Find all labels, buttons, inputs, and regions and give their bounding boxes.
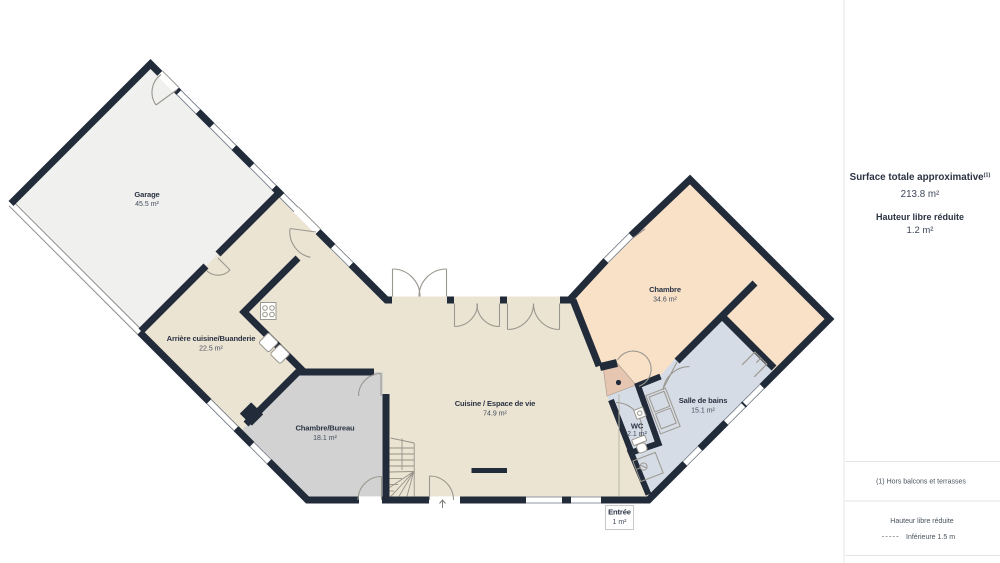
svg-text:22.5 m²: 22.5 m²	[199, 346, 223, 353]
svg-text:WC: WC	[631, 422, 644, 431]
svg-text:Garage: Garage	[134, 190, 159, 199]
svg-text:Arrière cuisine/Buanderie: Arrière cuisine/Buanderie	[167, 334, 256, 343]
svg-text:(1) Hors balcons et terrasses: (1) Hors balcons et terrasses	[876, 479, 966, 486]
svg-text:Entrée: Entrée	[608, 508, 631, 517]
svg-text:1 m²: 1 m²	[613, 519, 628, 526]
svg-text:Cuisine / Espace de vie: Cuisine / Espace de vie	[455, 399, 536, 408]
svg-text:34.6 m²: 34.6 m²	[653, 297, 677, 304]
svg-text:1.2 m²: 1.2 m²	[907, 225, 934, 236]
svg-text:213.8 m²: 213.8 m²	[901, 189, 940, 200]
svg-text:Hauteur libre réduite: Hauteur libre réduite	[890, 518, 954, 525]
svg-text:Chambre/Bureau: Chambre/Bureau	[295, 424, 355, 433]
svg-text:2.1 m²: 2.1 m²	[627, 431, 648, 438]
svg-text:45.5 m²: 45.5 m²	[135, 201, 159, 208]
svg-text:15.1 m²: 15.1 m²	[691, 408, 715, 415]
svg-text:Inférieure 1.5 m: Inférieure 1.5 m	[906, 534, 955, 541]
svg-text:18.1 m²: 18.1 m²	[313, 435, 337, 442]
svg-text:Chambre: Chambre	[649, 285, 681, 294]
svg-text:Hauteur libre réduite: Hauteur libre réduite	[876, 212, 964, 222]
svg-text:Surface totale approximative(1: Surface totale approximative(1)	[850, 172, 991, 183]
svg-text:Salle de bains: Salle de bains	[679, 396, 728, 405]
svg-text:74.9 m²: 74.9 m²	[483, 411, 507, 418]
